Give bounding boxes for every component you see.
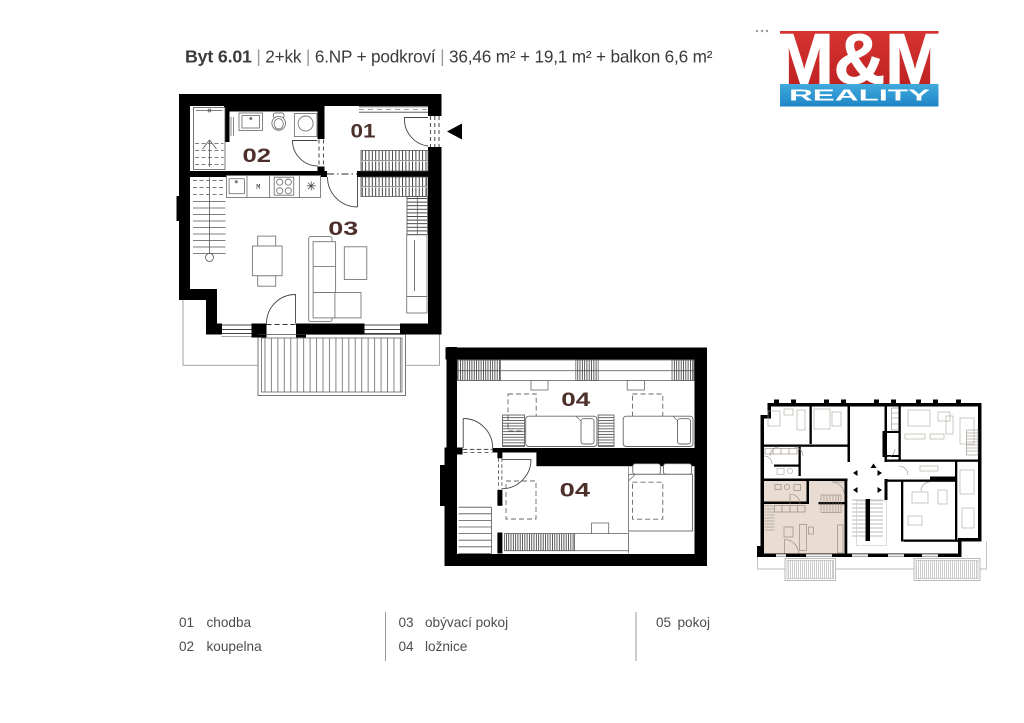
svg-text:pokoj: pokoj xyxy=(678,615,711,630)
svg-text:02: 02 xyxy=(243,146,272,167)
svg-text:chodba: chodba xyxy=(207,615,252,630)
svg-text:obývací pokoj: obývací pokoj xyxy=(425,615,508,630)
svg-text:03: 03 xyxy=(399,615,414,630)
svg-text:koupelna: koupelna xyxy=(207,639,263,654)
svg-text:01: 01 xyxy=(179,615,194,630)
svg-text:04: 04 xyxy=(399,639,415,654)
svg-text:01: 01 xyxy=(351,122,377,143)
svg-text:ložnice: ložnice xyxy=(425,639,467,654)
svg-text:03: 03 xyxy=(328,219,358,240)
svg-text:05: 05 xyxy=(656,615,671,630)
svg-text:02: 02 xyxy=(179,639,194,654)
svg-text:04: 04 xyxy=(561,390,591,411)
svg-text:M: M xyxy=(256,184,260,192)
svg-text:Byt 6.01 | 2+kk | 6.NP + podkr: Byt 6.01 | 2+kk | 6.NP + podkroví | 36,4… xyxy=(185,47,713,67)
svg-text:04: 04 xyxy=(560,480,591,501)
svg-text:REALITY: REALITY xyxy=(789,88,931,105)
